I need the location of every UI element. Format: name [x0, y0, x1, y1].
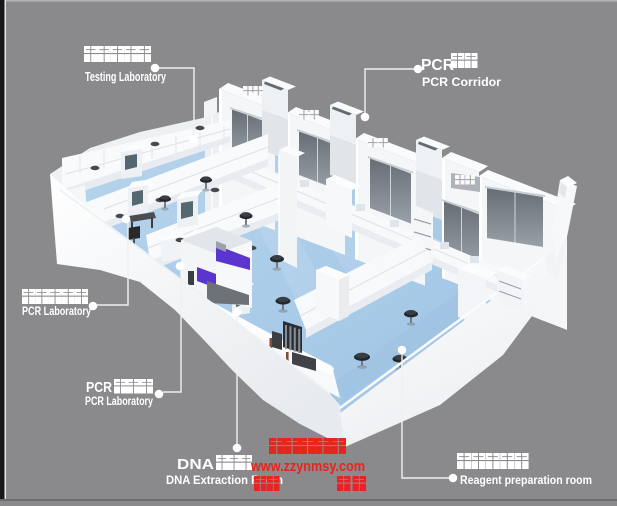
- svg-text:PCR: PCR: [421, 57, 454, 74]
- svg-text:Testing Laboratory: Testing Laboratory: [85, 70, 166, 84]
- svg-text:www.zzynmsy.com: www.zzynmsy.com: [250, 459, 365, 475]
- svg-text:PCR Laboratory: PCR Laboratory: [22, 306, 91, 318]
- svg-text:PCR Laboratory: PCR Laboratory: [85, 396, 153, 408]
- svg-text:DNA: DNA: [177, 456, 214, 473]
- svg-text:PCR Corridor: PCR Corridor: [422, 75, 501, 89]
- svg-text:Reagent preparation room: Reagent preparation room: [460, 473, 592, 487]
- svg-text:PCR: PCR: [86, 379, 112, 396]
